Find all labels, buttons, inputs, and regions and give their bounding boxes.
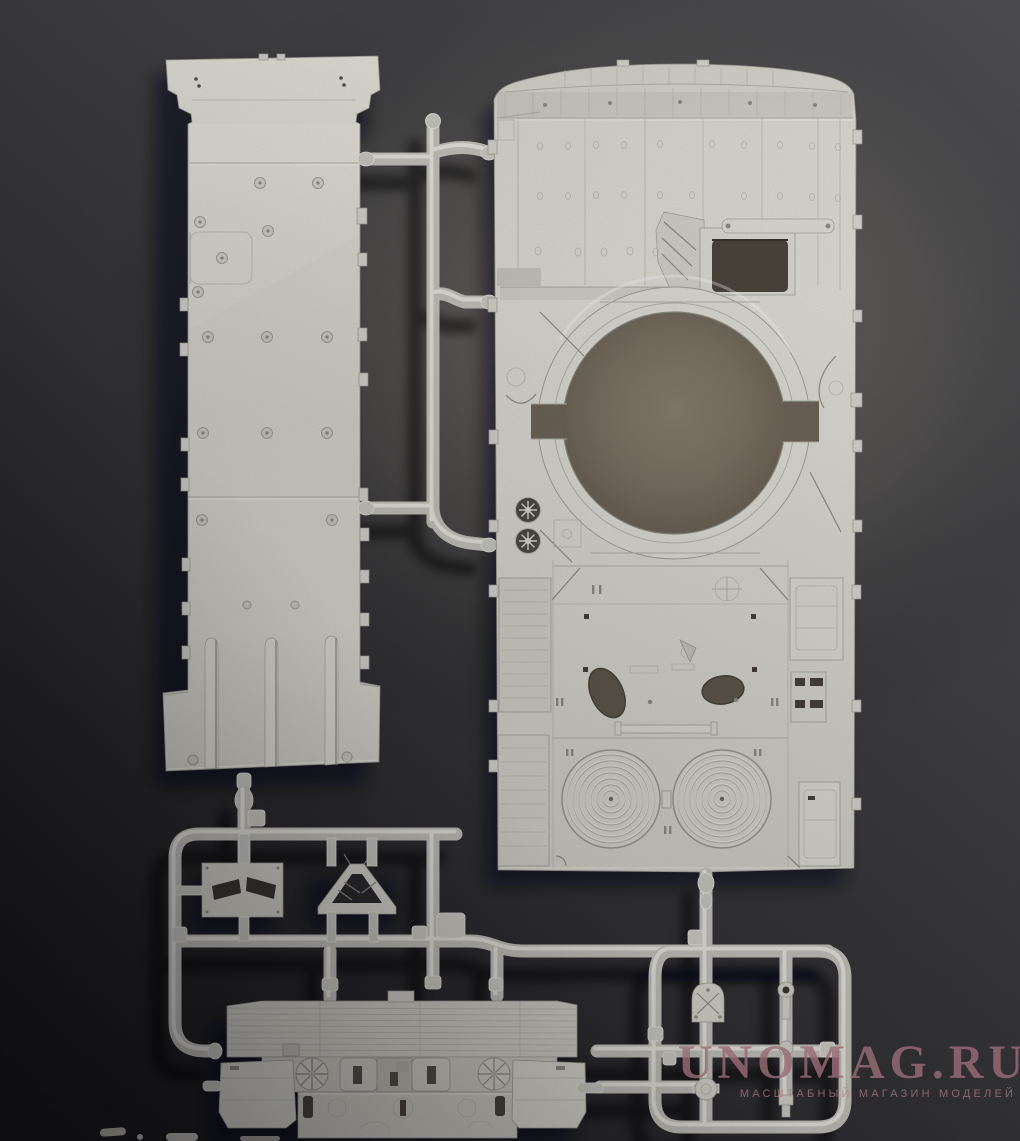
sprue-photo: UNOMAG.RU МАСШТАБНЫЙ МАГАЗИН МОДЕЛЕЙ — [0, 0, 1020, 1141]
watermark-subtitle: МАСШТАБНЫЙ МАГАЗИН МОДЕЛЕЙ — [740, 1087, 1016, 1100]
film-grain — [0, 0, 1020, 1141]
watermark-title: UNOMAG.RU — [678, 1036, 1020, 1089]
photo-canvas: UNOMAG.RU МАСШТАБНЫЙ МАГАЗИН МОДЕЛЕЙ — [0, 0, 1020, 1141]
